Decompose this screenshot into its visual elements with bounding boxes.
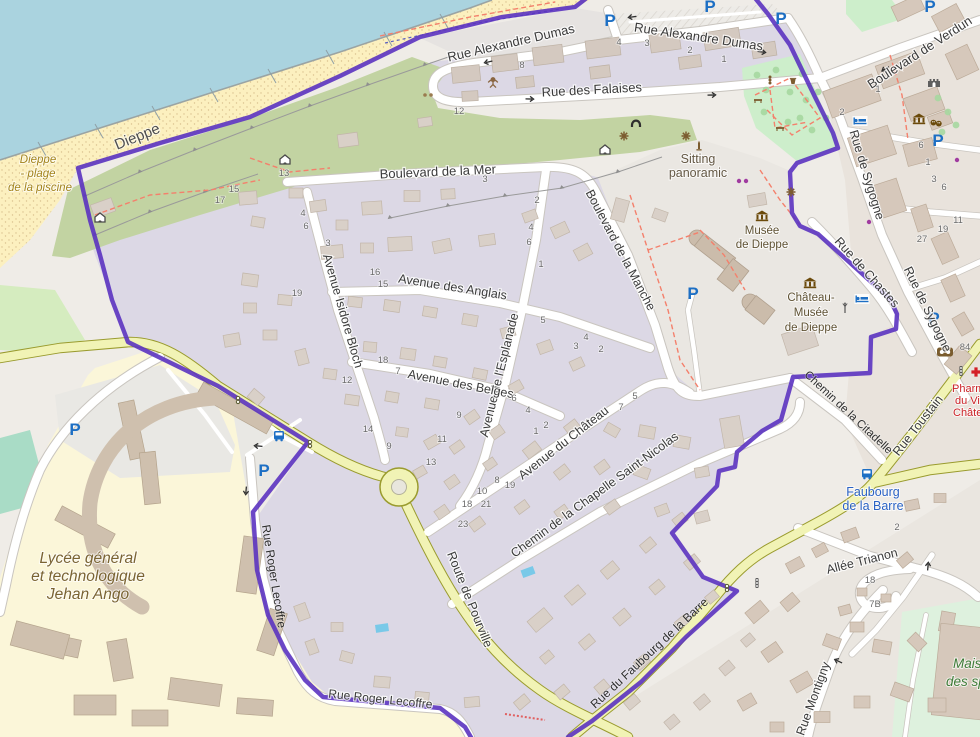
building — [638, 425, 656, 440]
house-number: 15 — [378, 279, 389, 290]
building — [417, 117, 432, 128]
tree-icon — [785, 119, 792, 126]
building — [241, 273, 259, 287]
hotel-icon — [855, 294, 870, 304]
building — [251, 216, 266, 228]
house-number: 13 — [426, 457, 437, 468]
tree-icon — [754, 72, 761, 79]
building — [464, 696, 480, 707]
building — [238, 191, 257, 206]
house-number: 6 — [511, 393, 516, 404]
building — [441, 189, 456, 200]
beach-name-line2: - plage — [20, 168, 55, 180]
tree-icon — [797, 115, 804, 122]
house-number: 3 — [644, 38, 649, 49]
house-number: 5 — [632, 391, 637, 402]
building — [491, 53, 519, 72]
school-label-line1: Lycée général — [39, 550, 137, 567]
beach-name-line1: Dieppe — [20, 154, 56, 166]
tree-icon — [945, 109, 952, 116]
house-number: 7 — [618, 402, 623, 413]
building — [433, 356, 448, 368]
tree-icon — [773, 67, 780, 74]
sports-label-line1: Maison — [953, 656, 980, 671]
chateau-museum-label-line1: Château- — [787, 292, 834, 304]
building — [289, 188, 303, 198]
house-number: 18 — [378, 355, 389, 366]
house-number: 12 — [454, 106, 465, 117]
building — [928, 698, 946, 712]
building — [337, 132, 359, 148]
house-number: 4 — [528, 222, 533, 233]
building — [132, 710, 168, 726]
building — [770, 722, 784, 732]
building — [532, 44, 564, 66]
map-screenshot: P P P P P P P P P Rue Alexandre Dumas Ru… — [0, 0, 980, 737]
parking-icon: P — [258, 461, 269, 480]
building — [462, 313, 479, 326]
pharmacy-label-line3: Château — [953, 407, 980, 419]
parking-icon: P — [704, 0, 715, 16]
pharmacy-label-line1: Pharmacie — [952, 383, 980, 395]
house-number: 4 — [300, 208, 305, 219]
house-number: 1 — [533, 426, 538, 437]
building — [74, 695, 116, 715]
house-number: 18 — [865, 575, 876, 586]
house-number: 6 — [303, 221, 308, 232]
building — [331, 623, 343, 632]
parking-icon: P — [69, 420, 80, 439]
house-number: 2 — [687, 45, 692, 56]
building — [881, 594, 891, 602]
house-number: 27 — [917, 234, 928, 245]
building — [400, 348, 416, 361]
house-number: 4 — [616, 37, 621, 48]
building — [857, 588, 867, 596]
building — [361, 243, 374, 253]
traffic-signal-icon — [755, 578, 758, 588]
house-number: 2 — [598, 344, 603, 355]
house-number: 2 — [839, 107, 844, 118]
house-number: 2 — [894, 522, 899, 533]
parking-icon: P — [687, 284, 698, 303]
pharmacy-label-line2: du Vieux — [955, 395, 980, 407]
building — [388, 236, 413, 251]
openstreetmap-view[interactable]: P P P P P P P P P Rue Alexandre Dumas Ru… — [0, 0, 980, 737]
house-number: 11 — [437, 434, 447, 445]
house-number: 3 — [325, 238, 330, 249]
building — [363, 341, 377, 352]
hotel-icon — [853, 116, 868, 126]
house-number: 6 — [526, 237, 531, 248]
house-number: 9 — [456, 410, 461, 421]
building — [422, 306, 438, 318]
parking-icon: P — [604, 11, 615, 30]
building — [850, 622, 864, 632]
house-number: 17 — [215, 195, 226, 206]
castle-icon — [928, 79, 940, 87]
beach-name-line3: de la piscine — [8, 182, 72, 194]
chateau-museum-label-line3: de Dieppe — [785, 322, 837, 334]
house-number: 5 — [540, 315, 545, 326]
building — [344, 394, 359, 406]
tree-icon — [953, 122, 960, 129]
building — [309, 199, 326, 212]
house-number: 19 — [292, 288, 303, 299]
house-number: 16 — [370, 267, 381, 278]
house-number: 18 — [462, 499, 473, 510]
bus-stop-label-line1: Faubourg — [846, 485, 900, 499]
building — [374, 676, 391, 688]
building — [236, 698, 273, 716]
building — [814, 712, 830, 723]
house-number: 7 — [395, 366, 400, 377]
house-number: 19 — [505, 480, 516, 491]
tree-icon — [787, 89, 794, 96]
house-number: 4 — [525, 405, 530, 416]
house-number: 8 — [494, 475, 499, 486]
house-number: 14 — [363, 424, 374, 435]
building — [278, 294, 293, 305]
building — [678, 55, 701, 70]
parking-icon: P — [932, 131, 943, 150]
museum-label-line1: Musée — [745, 225, 780, 237]
house-number: 23 — [458, 519, 469, 530]
building — [934, 494, 946, 503]
house-number: 1 — [721, 54, 726, 65]
building — [263, 330, 277, 340]
house-number: 13 — [279, 168, 290, 179]
building — [404, 191, 420, 202]
house-number: 6 — [941, 182, 946, 193]
sports-label-line2: des sports — [946, 674, 980, 689]
house-number: 3 — [931, 174, 936, 185]
museum-label-line2: de Dieppe — [736, 239, 788, 251]
viewpoint-icon — [682, 132, 691, 141]
building — [854, 696, 870, 708]
building — [244, 303, 257, 313]
house-number: 21 — [481, 499, 492, 510]
house-number: 2 — [543, 420, 548, 431]
viewpoint-icon — [787, 188, 796, 197]
building — [424, 398, 440, 410]
building — [462, 91, 479, 102]
house-number: 15 — [229, 184, 240, 195]
building — [451, 65, 481, 84]
building — [385, 391, 400, 403]
building — [323, 368, 337, 380]
house-number: 3 — [573, 341, 578, 352]
viewpoint-label-line1: Sitting — [681, 152, 716, 166]
building — [694, 466, 710, 478]
house-number: 84 — [960, 342, 971, 353]
tree-icon — [935, 95, 942, 102]
house-number: 1 — [538, 259, 543, 270]
traffic-signal-icon — [959, 366, 962, 376]
building — [348, 296, 363, 307]
house-number: 2 — [534, 195, 539, 206]
tree-icon — [761, 109, 768, 116]
house-number: 19 — [938, 224, 949, 235]
column-icon — [769, 76, 772, 85]
building — [515, 76, 534, 89]
parking-icon: P — [775, 9, 786, 28]
house-number: 11 — [953, 215, 963, 226]
roundabout — [380, 468, 418, 506]
tree-icon — [809, 127, 816, 134]
house-number: 10 — [477, 486, 488, 497]
house-number: 3 — [482, 174, 487, 185]
building — [478, 233, 495, 246]
school-label-line2: et technologique — [31, 568, 145, 585]
house-number: 6 — [918, 140, 923, 151]
house-number: 12 — [342, 375, 353, 386]
house-number: 4 — [583, 332, 588, 343]
chateau-museum-label-line2: Musée — [794, 307, 829, 319]
house-number: 7B — [869, 599, 881, 610]
building — [383, 299, 400, 312]
bus-stop-label-line2: de la Barre — [842, 499, 903, 513]
building — [872, 639, 892, 655]
viewpoint-label-line2: panoramic — [669, 166, 727, 180]
house-number: 1 — [875, 84, 880, 95]
viewpoint-icon — [620, 132, 629, 141]
house-number: 9 — [386, 441, 391, 452]
parking-icon: P — [924, 0, 935, 16]
building — [223, 333, 241, 348]
school-label-line3: Jehan Ango — [46, 586, 130, 603]
house-number: 1 — [925, 157, 930, 168]
house-number: 8 — [519, 60, 524, 71]
building — [336, 220, 348, 230]
building — [589, 65, 610, 79]
building — [362, 201, 383, 215]
building — [395, 427, 408, 438]
